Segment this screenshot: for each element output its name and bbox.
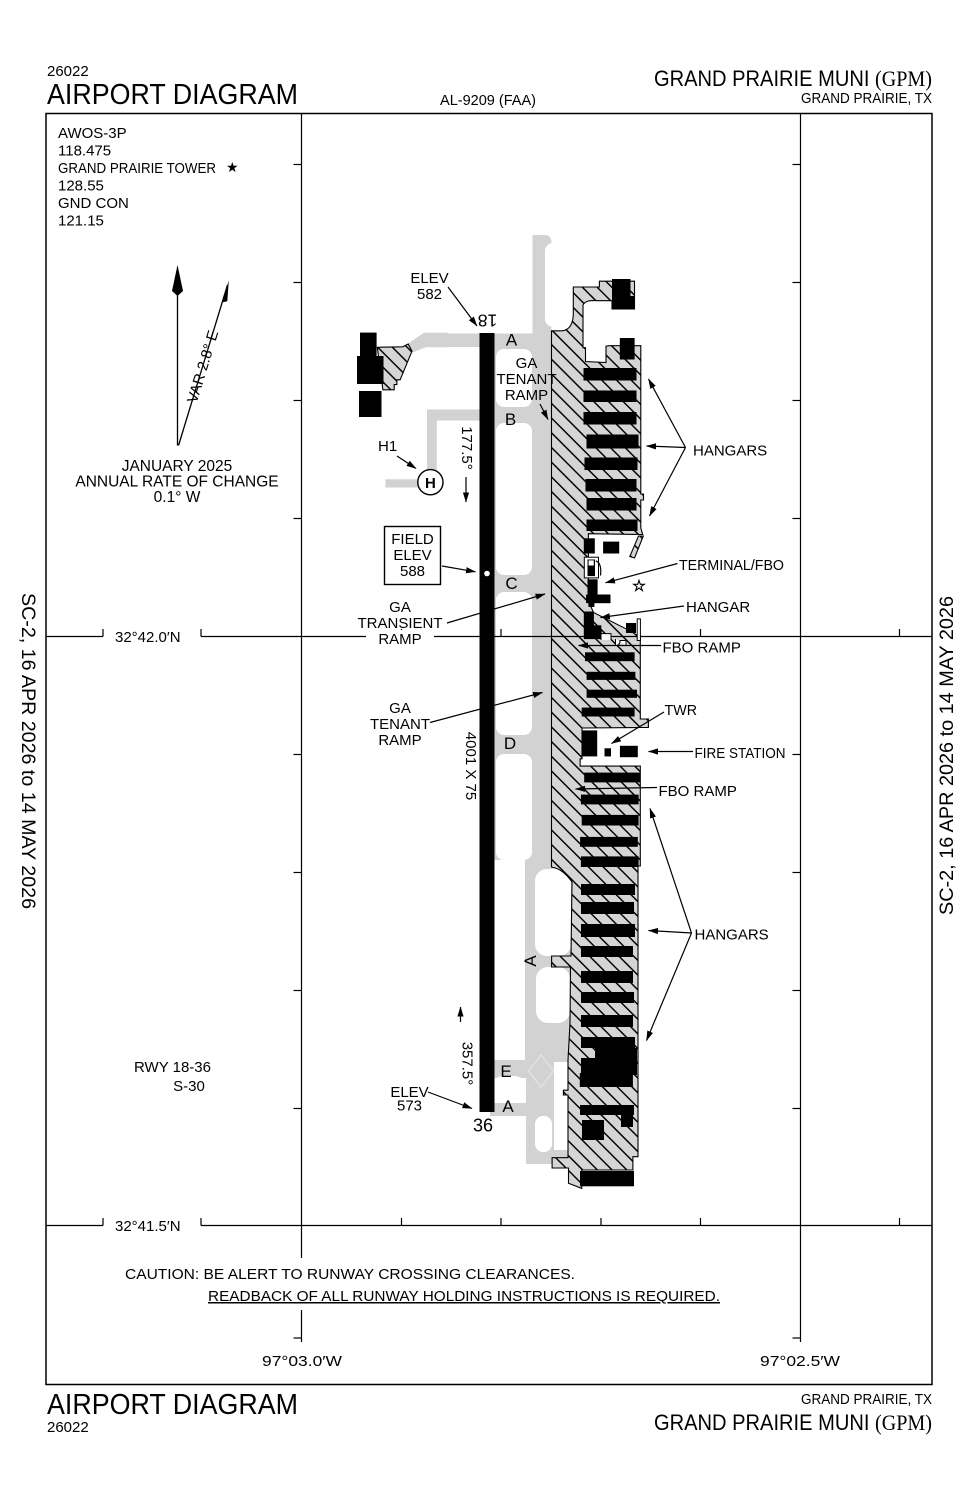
svg-text:32°41.5′N: 32°41.5′N: [115, 1218, 181, 1235]
svg-text:A: A: [521, 955, 540, 967]
svg-text:E: E: [500, 1062, 511, 1081]
svg-text:A: A: [506, 331, 518, 350]
svg-text:TENANT: TENANT: [497, 371, 557, 388]
svg-text:GRAND PRAIRIE MUNI (GPM): GRAND PRAIRIE MUNI (GPM): [654, 66, 932, 91]
svg-text:CAUTION: BE ALERT TO RUNWAY CR: CAUTION: BE ALERT TO RUNWAY CROSSING CLE…: [125, 1266, 575, 1283]
svg-text:JANUARY 2025: JANUARY 2025: [122, 458, 233, 475]
svg-text:GA: GA: [516, 355, 538, 372]
svg-text:36: 36: [473, 1116, 493, 1136]
svg-text:ANNUAL RATE OF CHANGE: ANNUAL RATE OF CHANGE: [75, 474, 278, 491]
svg-text:H1: H1: [378, 438, 397, 455]
svg-text:RAMP: RAMP: [378, 631, 421, 648]
svg-text:RAMP: RAMP: [505, 387, 548, 404]
svg-text:★: ★: [226, 159, 239, 175]
svg-text:582: 582: [417, 286, 442, 303]
svg-text:GA: GA: [389, 599, 411, 616]
svg-text:GRAND PRAIRIE TOWER: GRAND PRAIRIE TOWER: [58, 160, 216, 177]
svg-text:C: C: [505, 574, 517, 593]
svg-text:FIELD: FIELD: [391, 531, 434, 548]
svg-text:SC-2, 16 APR 2026 to 14 MAY: SC-2, 16 APR 2026 to 14 MAY 2026: [937, 596, 958, 915]
svg-text:118.475: 118.475: [58, 143, 111, 160]
svg-text:TENANT: TENANT: [370, 716, 430, 733]
svg-text:177.5°: 177.5°: [458, 426, 475, 470]
svg-text:ELEV: ELEV: [410, 270, 448, 287]
svg-text:GA: GA: [389, 700, 411, 717]
svg-text:B: B: [505, 410, 516, 429]
svg-text:26022: 26022: [47, 1419, 89, 1436]
svg-text:GRAND PRAIRIE, TX: GRAND PRAIRIE, TX: [801, 1392, 932, 1408]
svg-text:32°42.0′N: 32°42.0′N: [115, 629, 181, 646]
svg-text:SC-2, 16 APR 2026 to 14 MAY: SC-2, 16 APR 2026 to 14 MAY 2026: [17, 593, 38, 909]
svg-text:FBO RAMP: FBO RAMP: [659, 783, 737, 800]
svg-text:H: H: [425, 475, 436, 492]
svg-text:HANGAR: HANGAR: [686, 599, 750, 616]
svg-text:121.15: 121.15: [58, 213, 104, 230]
svg-text:ELEV: ELEV: [393, 547, 431, 564]
svg-text:S-30: S-30: [173, 1078, 205, 1095]
svg-text:AL-9209 (FAA): AL-9209 (FAA): [440, 93, 536, 109]
svg-text:357.5°: 357.5°: [459, 1042, 476, 1086]
svg-text:4001 X 75: 4001 X 75: [462, 732, 479, 800]
svg-text:RAMP: RAMP: [378, 732, 421, 749]
svg-text:HANGARS: HANGARS: [693, 443, 767, 460]
svg-text:GRAND PRAIRIE MUNI (GPM): GRAND PRAIRIE MUNI (GPM): [654, 1410, 932, 1435]
svg-text:588: 588: [400, 563, 425, 580]
svg-text:RWY 18-36: RWY 18-36: [134, 1059, 211, 1076]
svg-text:97°03.0′W: 97°03.0′W: [262, 1353, 343, 1370]
svg-text:FIRE STATION: FIRE STATION: [695, 745, 786, 762]
svg-text:FBO RAMP: FBO RAMP: [663, 640, 741, 657]
svg-text:GRAND PRAIRIE, TX: GRAND PRAIRIE, TX: [801, 91, 932, 107]
svg-text:A: A: [502, 1097, 514, 1116]
svg-text:128.55: 128.55: [58, 178, 104, 195]
svg-text:READBACK OF ALL RUNWAY HOLDING: READBACK OF ALL RUNWAY HOLDING INSTRUCTI…: [208, 1288, 720, 1305]
svg-text:AIRPORT DIAGRAM: AIRPORT DIAGRAM: [47, 79, 298, 111]
svg-text:AIRPORT DIAGRAM: AIRPORT DIAGRAM: [47, 1389, 298, 1421]
svg-text:573: 573: [397, 1098, 422, 1115]
svg-text:AWOS-3P: AWOS-3P: [58, 125, 127, 142]
svg-text:HANGARS: HANGARS: [695, 927, 769, 944]
svg-text:0.1° W: 0.1° W: [154, 489, 201, 506]
svg-text:D: D: [504, 734, 516, 753]
svg-text:TWR: TWR: [665, 702, 698, 719]
svg-text:TRANSIENT: TRANSIENT: [357, 615, 442, 632]
svg-text:GND CON: GND CON: [58, 195, 129, 212]
svg-text:TERMINAL/FBO: TERMINAL/FBO: [679, 557, 784, 574]
svg-text:26022: 26022: [47, 63, 89, 80]
svg-text:97°02.5′W: 97°02.5′W: [760, 1353, 841, 1370]
svg-text:18: 18: [478, 311, 497, 331]
